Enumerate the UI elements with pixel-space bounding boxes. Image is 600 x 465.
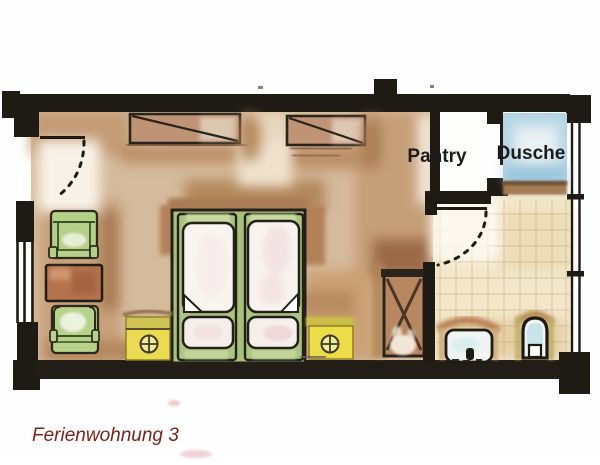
- svg-text:Ferienwohnung 3: Ferienwohnung 3: [32, 425, 179, 446]
- svg-text:Dusche: Dusche: [497, 143, 566, 164]
- svg-text:Pantry: Pantry: [407, 146, 467, 167]
